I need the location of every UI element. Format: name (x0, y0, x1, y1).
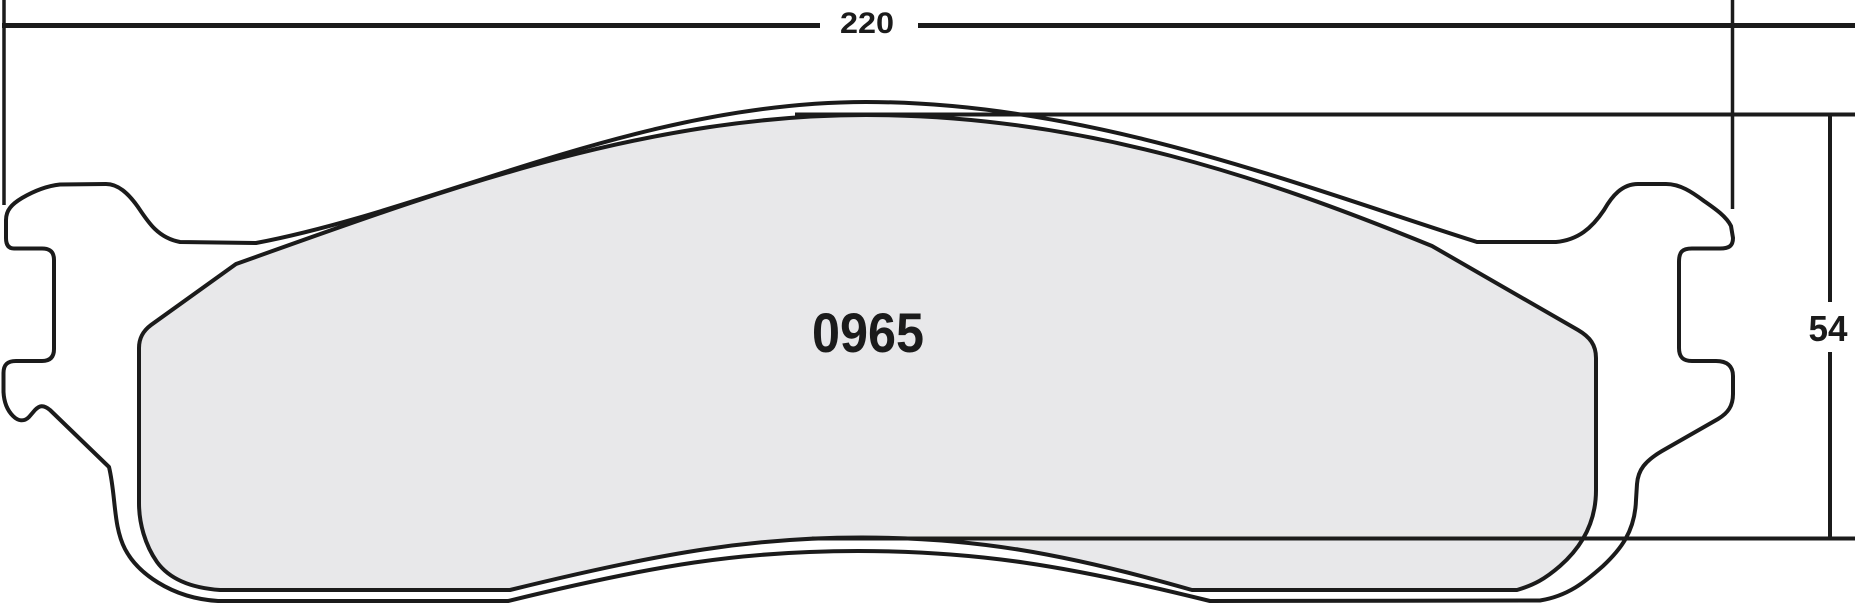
width-dimension-label: 220 (840, 7, 894, 40)
brake-pad-technical-drawing: 220 54 0965 (0, 0, 1855, 604)
height-dimension-label: 54 (1809, 308, 1848, 349)
pad-linework (2, 0, 1855, 601)
pad-drawing-canvas: 220 54 0965 (0, 0, 1855, 604)
part-number: 0965 (812, 301, 924, 364)
